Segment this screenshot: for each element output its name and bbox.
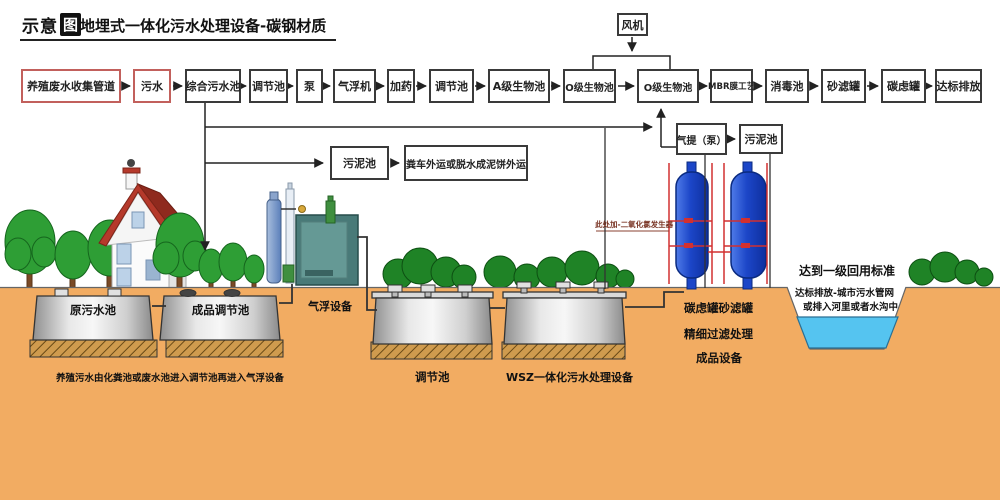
air-flotation-unit [267,183,358,285]
page-title: 地埋式一体化污水处理设备-碳钢材质 [80,15,326,36]
carbon-filter-vessel [676,172,708,278]
label-air-flotation-equipment: 气浮设备 [308,298,352,314]
flow-box-o-grade-bio-pool-1: O级生物池 [563,69,616,103]
flow-box-regulating-pool-1: 调节池 [249,69,288,103]
label-filter-tanks-line2: 精细过滤处理 [684,326,753,342]
label-filter-tanks-line3: 成品设备 [696,350,742,366]
flow-box-airlift-pump: 气提（泵） [676,123,727,155]
label-raw-sewage-pool: 原污水池 [38,302,148,318]
label-chlorine-generator-note: 此处加-二氧化氯发生器 [595,219,673,230]
filter-tanks [676,162,766,289]
flow-box-sewage: 污水 [133,69,171,103]
logo-badge: 图 [60,13,81,36]
label-discharge-network: 达标排放-城市污水管网 [795,285,894,299]
wsz-tank [504,298,625,344]
label-wsz-equipment: WSZ一体化污水处理设备 [506,369,633,385]
label-discharge-river: 或排入河里或者水沟中 [803,299,898,313]
flow-box-disinfection-pool: 消毒池 [765,69,809,103]
flow-box-sludge-truck-disposal: 粪车外运或脱水成泥饼外运 [404,145,528,181]
flow-box-o-grade-bio-pool-2: O级生物池 [637,69,699,103]
schematic-page: 示意图 地埋式一体化污水处理设备-碳钢材质 [0,0,1000,500]
logo: 示意图 [22,12,81,37]
flow-box-dosing: 加药 [387,69,415,103]
sand-filter-vessel [731,172,766,278]
label-filter-tanks-line1: 碳虑罐砂滤罐 [684,300,753,316]
flow-box-a-grade-bio-pool: A级生物池 [488,69,550,103]
flow-box-sludge-pool-right: 污泥池 [739,124,783,154]
label-mid-regulating-pool: 调节池 [415,369,450,385]
label-bottom-caption: 养殖污水由化粪池或废水池进入调节池再进入气浮设备 [56,370,284,384]
flow-box-carbon-filter-tank: 碳虑罐 [881,69,926,103]
flow-box-breeding-wastewater-collection-pipe: 养殖废水收集管道 [21,69,121,103]
flow-box-standard-discharge: 达标排放 [935,69,982,103]
label-product-regulating-pool: 成品调节池 [163,302,278,318]
flow-box-sand-filter-tank: 砂滤罐 [821,69,866,103]
flow-box-comprehensive-sewage-pool: 综合污水池 [185,69,241,103]
flow-box-sludge-pool-left: 污泥池 [330,146,389,180]
discharge-pool-water [797,317,898,348]
flow-box-pump: 泵 [296,69,323,103]
flow-box-mbr-membrane: MBR膜工艺 [710,69,753,103]
flow-box-regulating-pool-2: 调节池 [429,69,474,103]
mid-regulating-tank [373,298,492,344]
logo-text: 示意 [22,12,58,37]
flow-box-fan: 风机 [617,13,648,36]
title-underline [20,39,336,41]
flow-box-air-flotation-machine: 气浮机 [333,69,376,103]
label-reuse-standard: 达到一级回用标准 [799,262,895,279]
